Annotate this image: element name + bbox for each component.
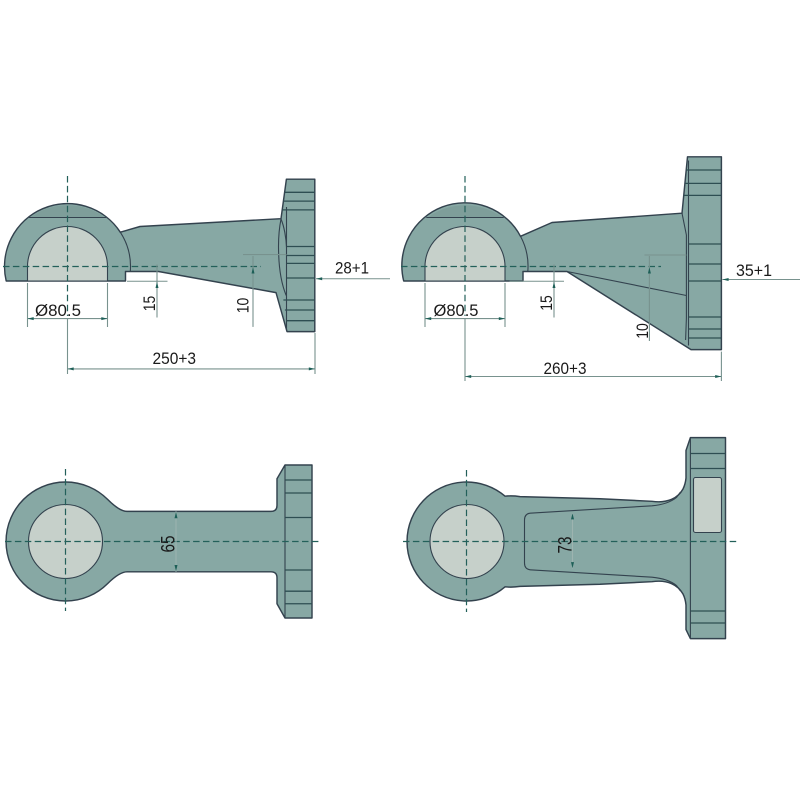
svg-text:Ø80.5: Ø80.5 — [35, 301, 81, 320]
svg-text:250+3: 250+3 — [153, 349, 197, 368]
svg-text:28+1: 28+1 — [335, 259, 369, 278]
svg-text:15: 15 — [537, 295, 556, 311]
svg-text:10: 10 — [233, 298, 252, 314]
svg-text:10: 10 — [633, 323, 652, 339]
svg-text:260+3: 260+3 — [544, 359, 587, 378]
svg-text:15: 15 — [140, 296, 159, 312]
svg-text:Ø80.5: Ø80.5 — [434, 301, 479, 320]
svg-text:35+1: 35+1 — [736, 261, 772, 280]
svg-text:73: 73 — [555, 537, 576, 554]
svg-text:65: 65 — [159, 536, 180, 553]
